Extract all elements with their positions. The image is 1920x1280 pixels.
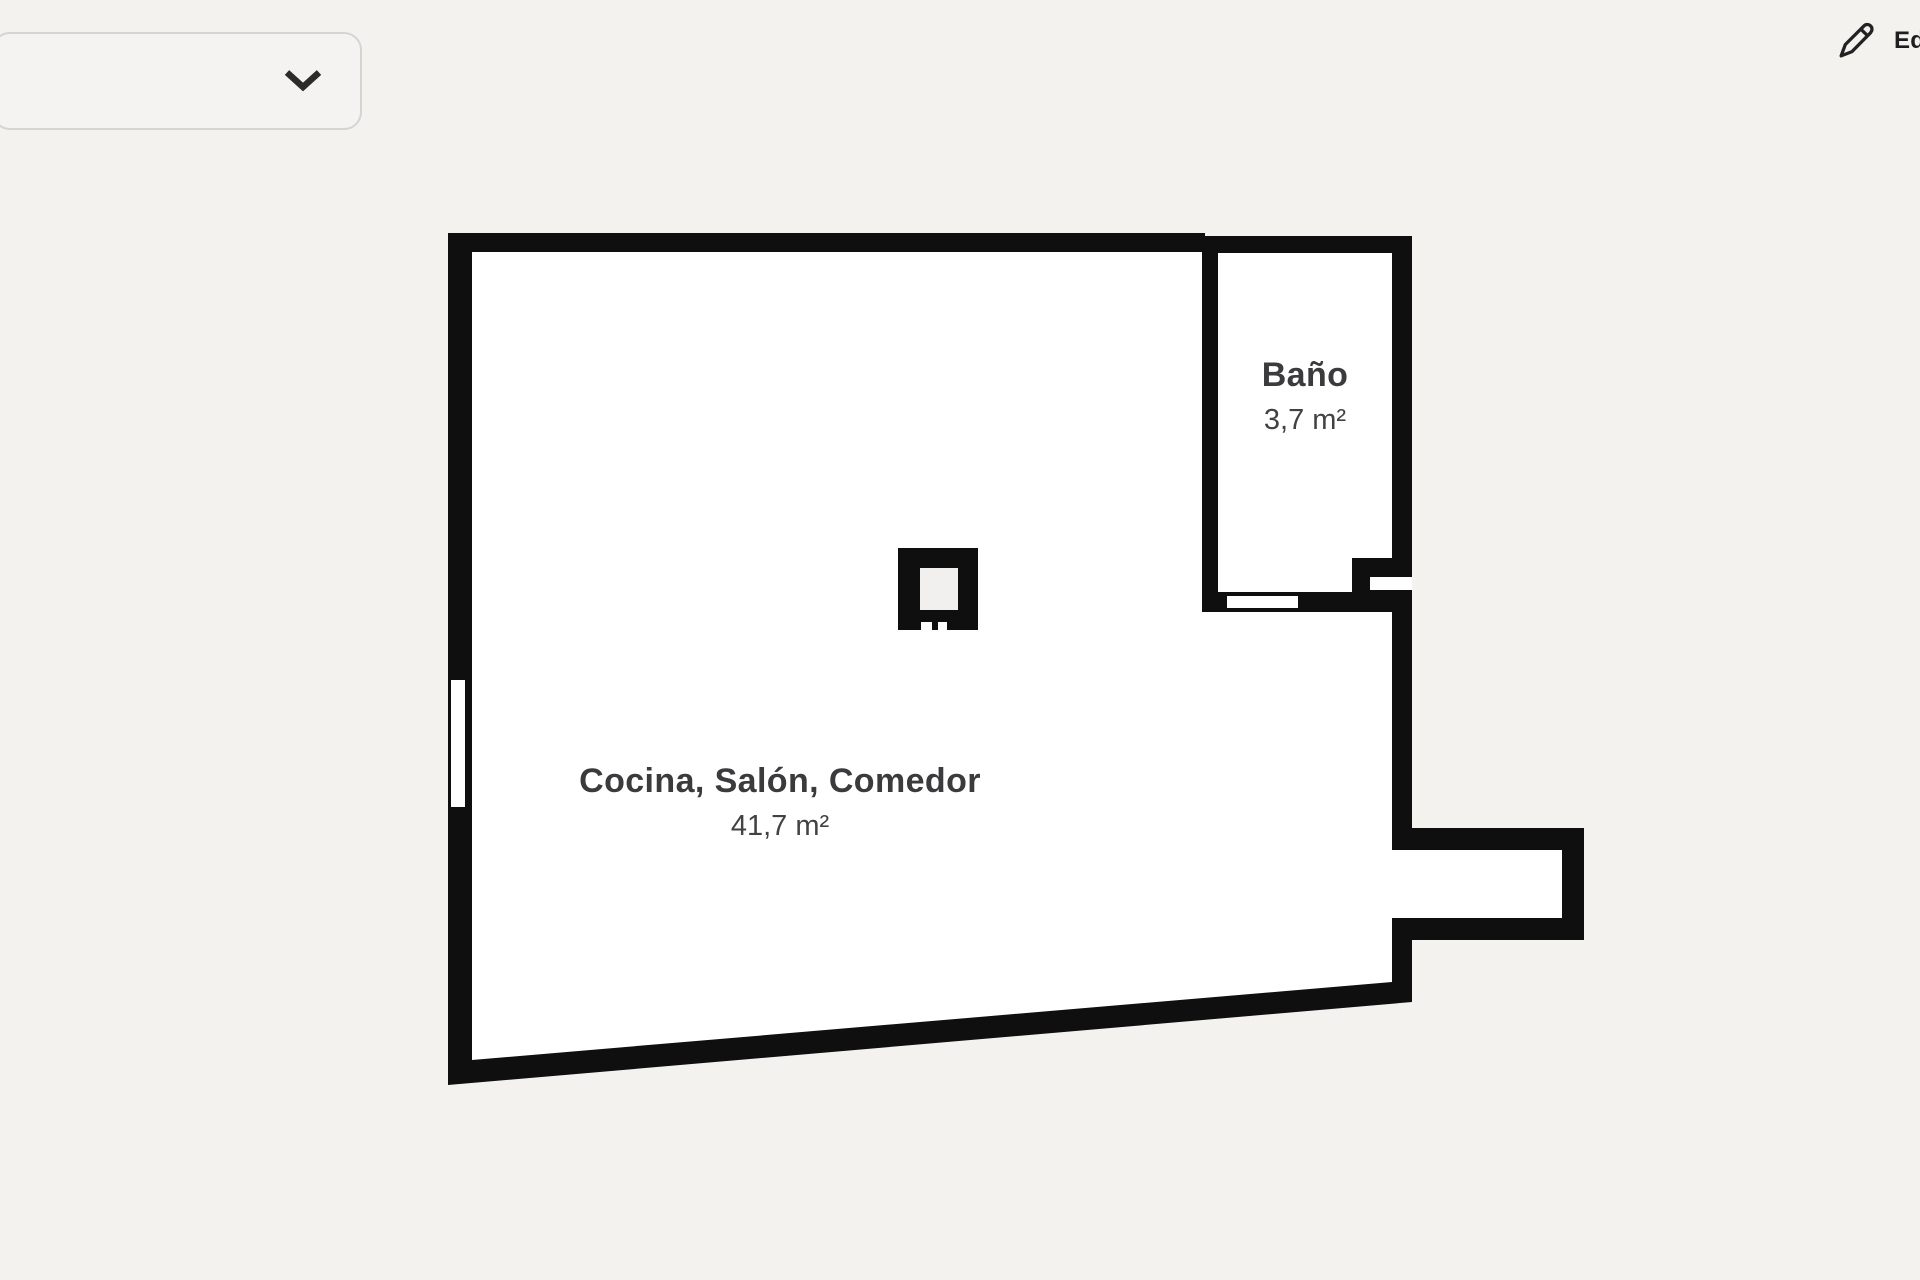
entry-nook-floor: [1392, 850, 1562, 918]
bathroom-door-opening: [1227, 596, 1298, 608]
pillar-notch: [921, 622, 932, 631]
pillar-core: [920, 568, 958, 610]
wall-vent-opening: [1370, 577, 1412, 590]
page: Editar Baño 3,7 m² Cocina, Salón, Comedo…: [0, 0, 1920, 1280]
floorplan-canvas: [0, 0, 1920, 1280]
window-opening: [451, 680, 465, 807]
bathroom-floor: [1218, 253, 1392, 592]
pillar-notch: [938, 622, 947, 631]
